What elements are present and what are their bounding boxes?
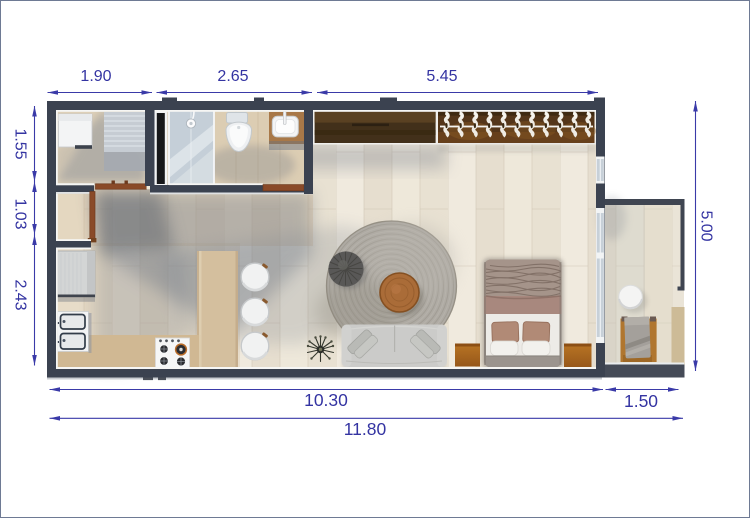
svg-text:1.90: 1.90: [80, 68, 111, 85]
svg-text:10.30: 10.30: [304, 390, 348, 410]
svg-text:1.55: 1.55: [12, 128, 29, 159]
svg-text:2.43: 2.43: [12, 279, 29, 310]
svg-text:1.50: 1.50: [624, 391, 658, 411]
svg-text:2.65: 2.65: [217, 68, 248, 85]
svg-text:5.45: 5.45: [426, 68, 457, 85]
svg-text:11.80: 11.80: [344, 419, 387, 439]
svg-text:5.00: 5.00: [698, 210, 715, 241]
svg-text:1.03: 1.03: [12, 198, 29, 229]
